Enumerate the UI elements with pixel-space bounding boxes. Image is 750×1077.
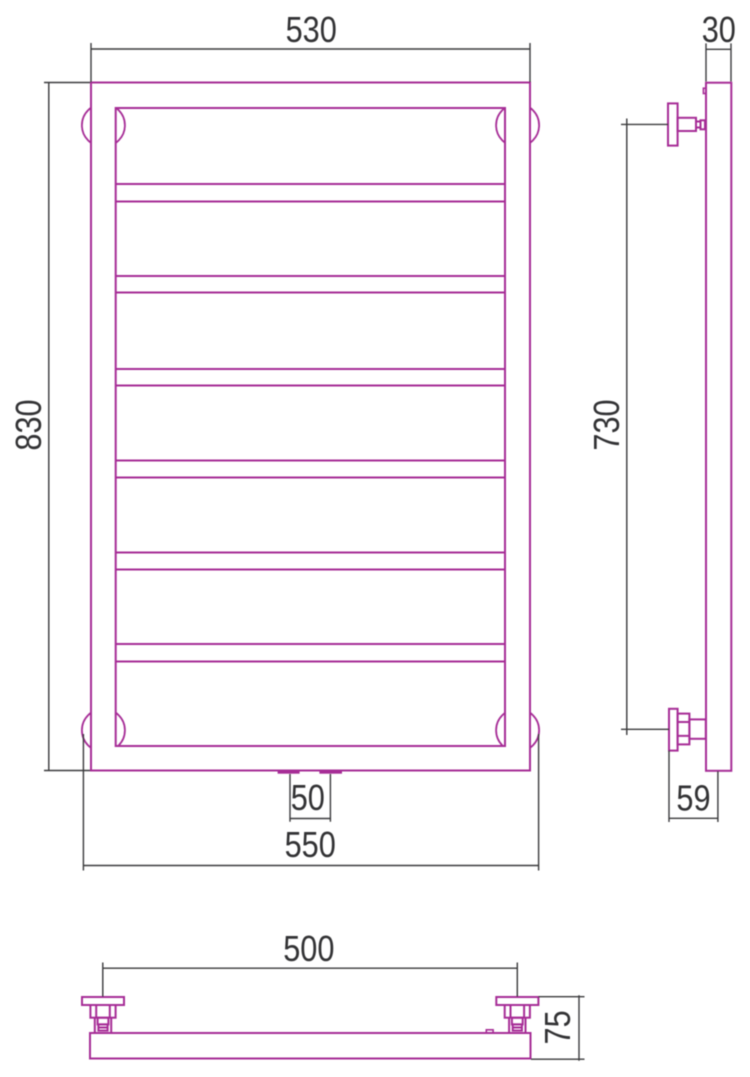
svg-text:50: 50	[291, 779, 325, 819]
svg-text:550: 550	[285, 826, 336, 866]
svg-text:530: 530	[286, 11, 337, 51]
svg-text:75: 75	[539, 1010, 579, 1044]
svg-text:30: 30	[702, 11, 736, 51]
svg-text:830: 830	[10, 399, 50, 450]
svg-text:59: 59	[676, 779, 710, 819]
svg-text:500: 500	[283, 930, 334, 970]
svg-text:730: 730	[588, 399, 628, 450]
